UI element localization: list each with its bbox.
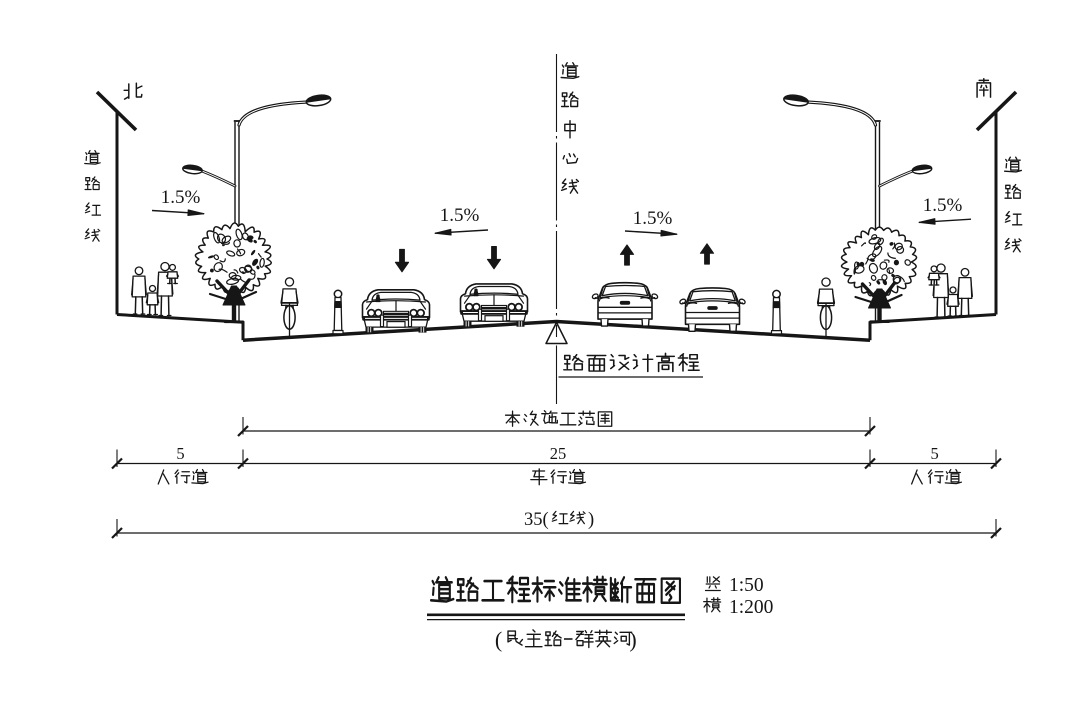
svg-text:1.5%: 1.5% [923, 195, 963, 216]
svg-text:25: 25 [550, 444, 567, 463]
svg-text:5: 5 [930, 444, 938, 463]
svg-text:1:200: 1:200 [729, 597, 773, 618]
svg-text:): ) [629, 627, 636, 652]
svg-text:35(: 35( [524, 510, 549, 530]
svg-text:1:50: 1:50 [729, 575, 764, 596]
svg-text:1.5%: 1.5% [161, 187, 201, 208]
svg-text:): ) [588, 510, 594, 530]
svg-text:(: ( [495, 627, 502, 652]
svg-text:5: 5 [176, 444, 184, 463]
svg-text:1.5%: 1.5% [440, 205, 480, 226]
svg-text:1.5%: 1.5% [633, 208, 673, 229]
